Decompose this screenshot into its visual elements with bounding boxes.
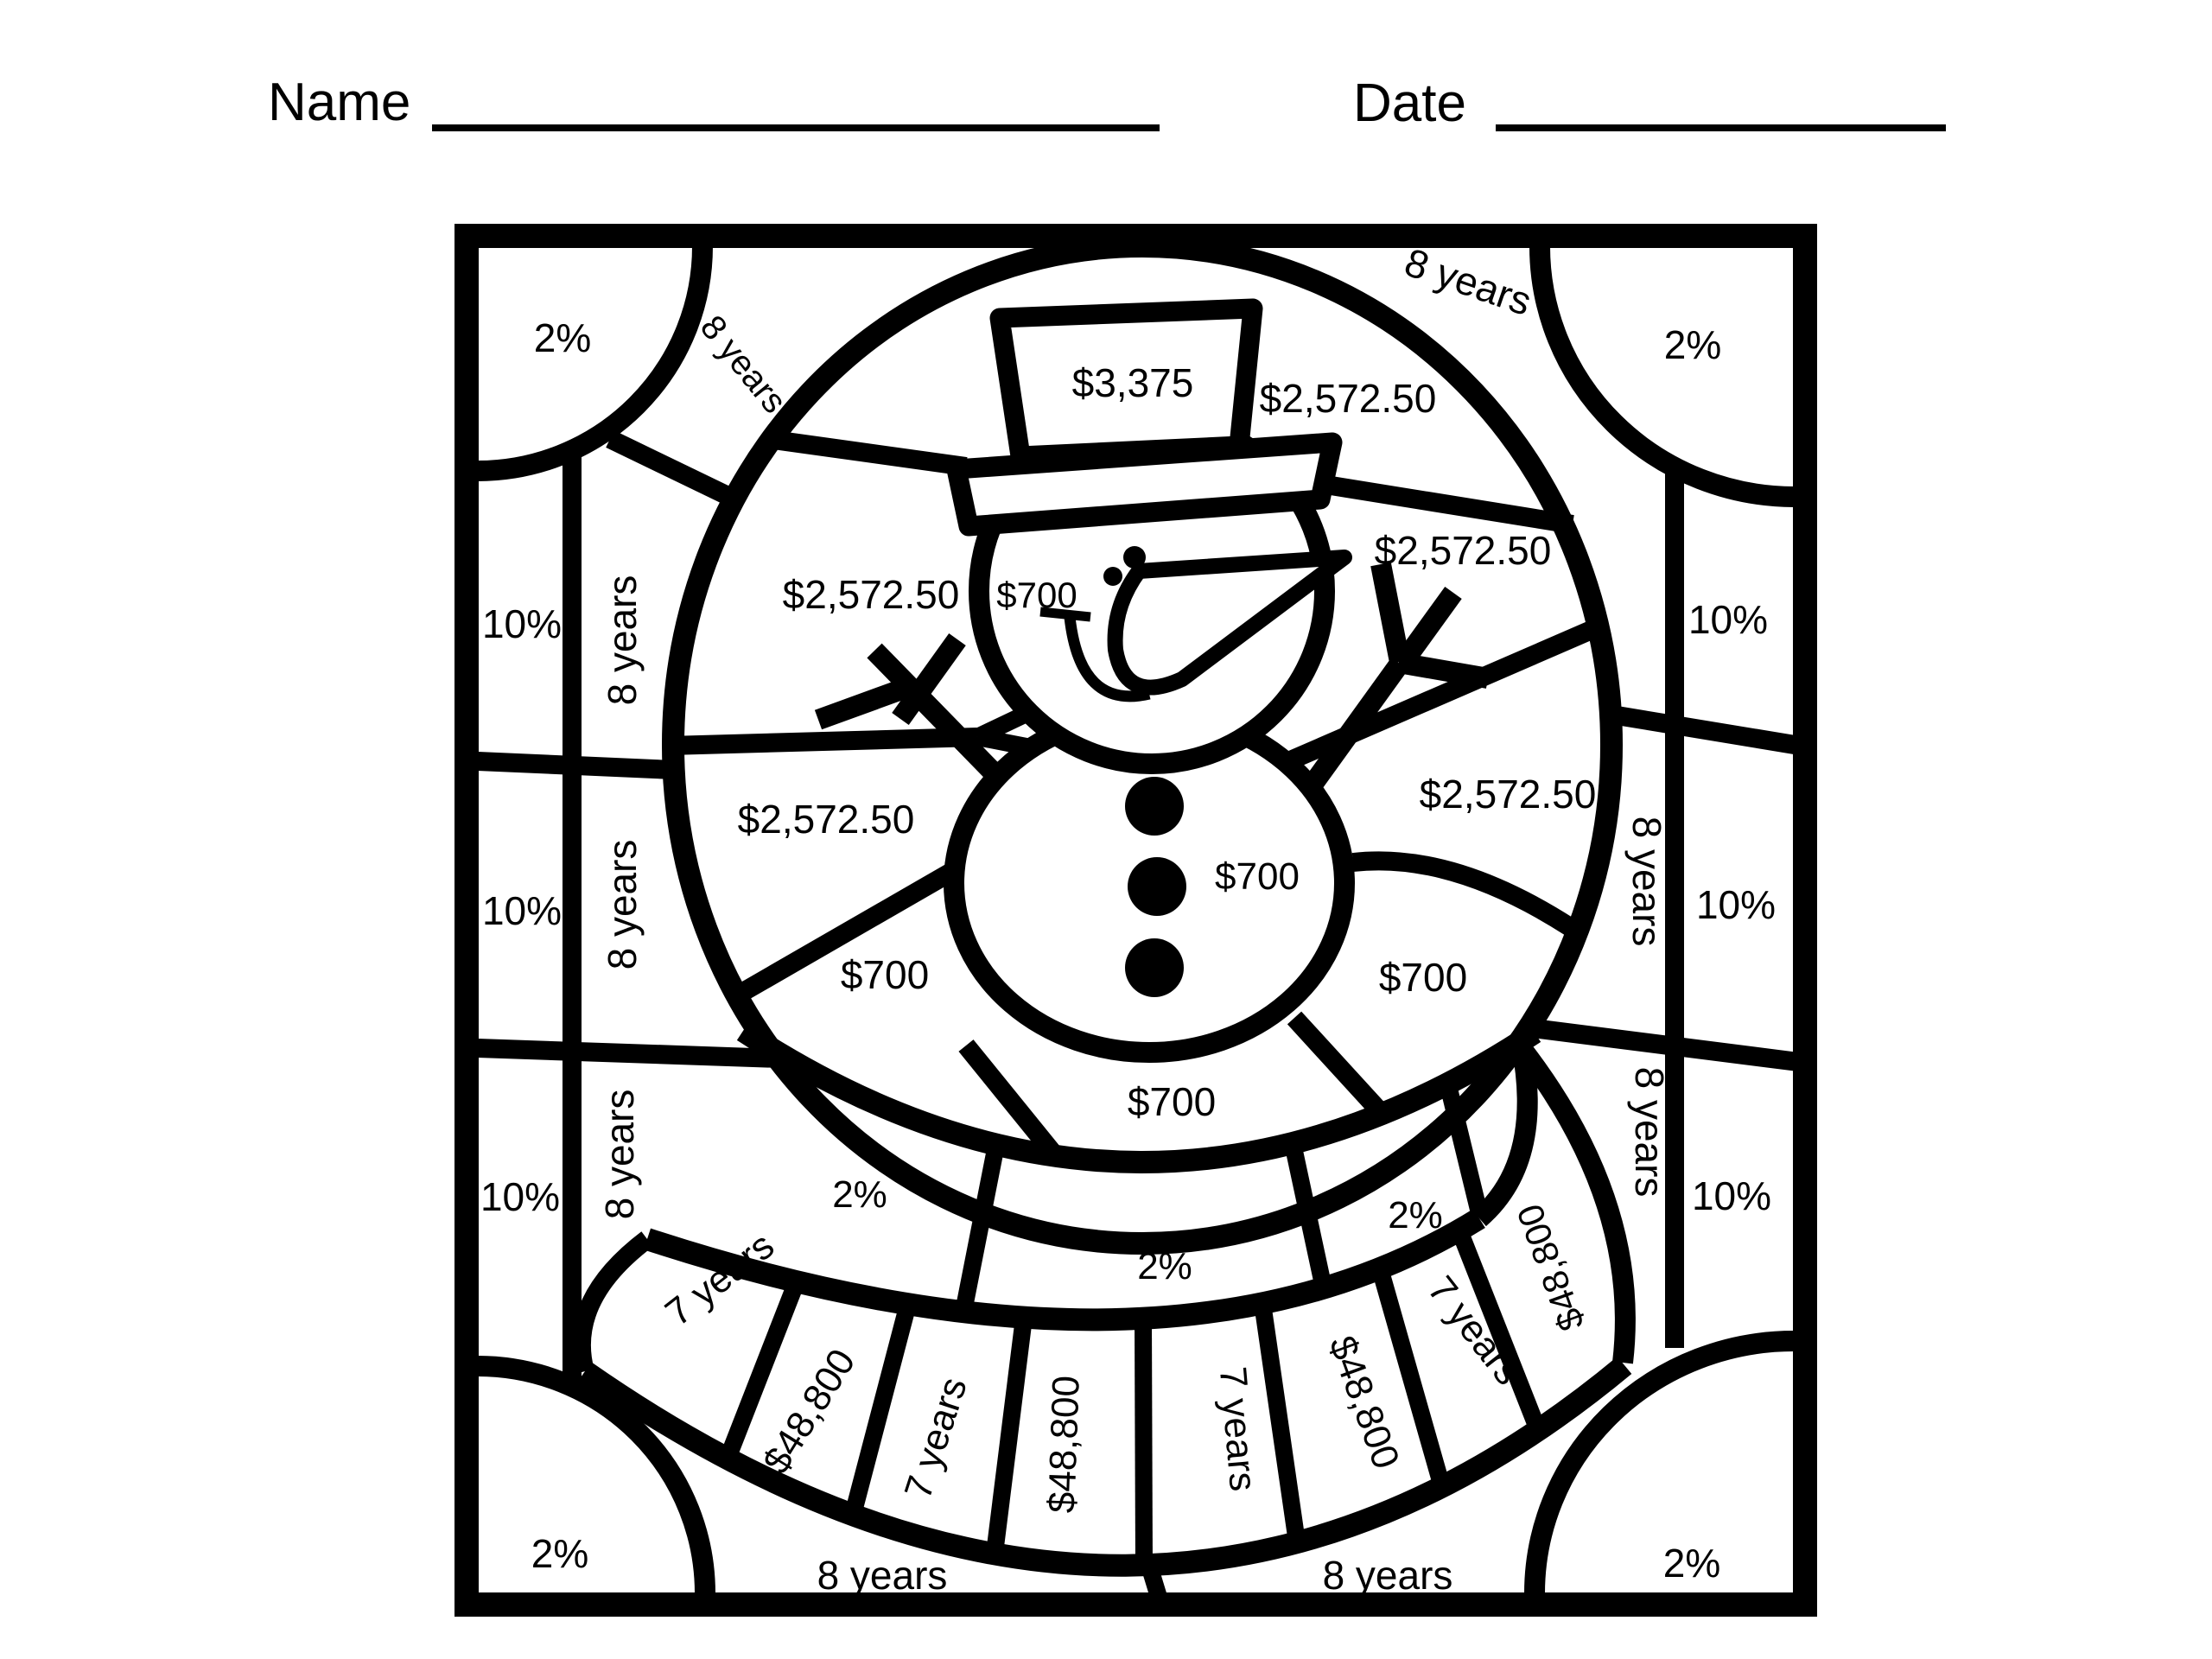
- svg-text:2%: 2%: [534, 315, 591, 360]
- svg-text:8 years: 8 years: [600, 575, 645, 706]
- svg-text:$700: $700: [1215, 855, 1300, 898]
- svg-text:$2,572.50: $2,572.50: [1260, 376, 1437, 421]
- svg-text:10%: 10%: [1688, 597, 1768, 642]
- svg-text:10%: 10%: [1692, 1173, 1771, 1218]
- svg-text:8 years: 8 years: [1323, 1553, 1453, 1598]
- svg-text:8 years: 8 years: [600, 840, 645, 970]
- svg-text:$2,572.50: $2,572.50: [1420, 772, 1597, 817]
- svg-text:2%: 2%: [1664, 322, 1721, 367]
- svg-text:$2,572.50: $2,572.50: [738, 797, 915, 842]
- svg-text:10%: 10%: [482, 601, 562, 646]
- svg-text:$48,800: $48,800: [1040, 1375, 1088, 1514]
- svg-text:Date: Date: [1353, 73, 1466, 133]
- svg-text:$700: $700: [996, 575, 1077, 615]
- svg-text:$700: $700: [841, 952, 929, 997]
- svg-text:8 years: 8 years: [817, 1553, 948, 1598]
- svg-text:10%: 10%: [480, 1174, 560, 1219]
- svg-text:$3,375: $3,375: [1072, 360, 1194, 405]
- svg-text:10%: 10%: [1696, 882, 1776, 927]
- svg-text:10%: 10%: [482, 888, 562, 933]
- svg-text:Name: Name: [268, 73, 410, 132]
- svg-text:$700: $700: [1379, 955, 1467, 1000]
- svg-text:2%: 2%: [1137, 1245, 1192, 1287]
- svg-text:2%: 2%: [832, 1173, 887, 1216]
- svg-text:8 years: 8 years: [1627, 1067, 1672, 1198]
- svg-text:2%: 2%: [531, 1531, 588, 1576]
- svg-text:2%: 2%: [1388, 1194, 1443, 1236]
- svg-text:2%: 2%: [1663, 1541, 1720, 1586]
- svg-text:$2,572.50: $2,572.50: [1375, 528, 1552, 573]
- svg-text:$2,572.50: $2,572.50: [783, 572, 960, 617]
- svg-text:8 years: 8 years: [1624, 817, 1669, 947]
- svg-text:$700: $700: [1128, 1079, 1216, 1124]
- svg-text:8 years: 8 years: [597, 1090, 642, 1220]
